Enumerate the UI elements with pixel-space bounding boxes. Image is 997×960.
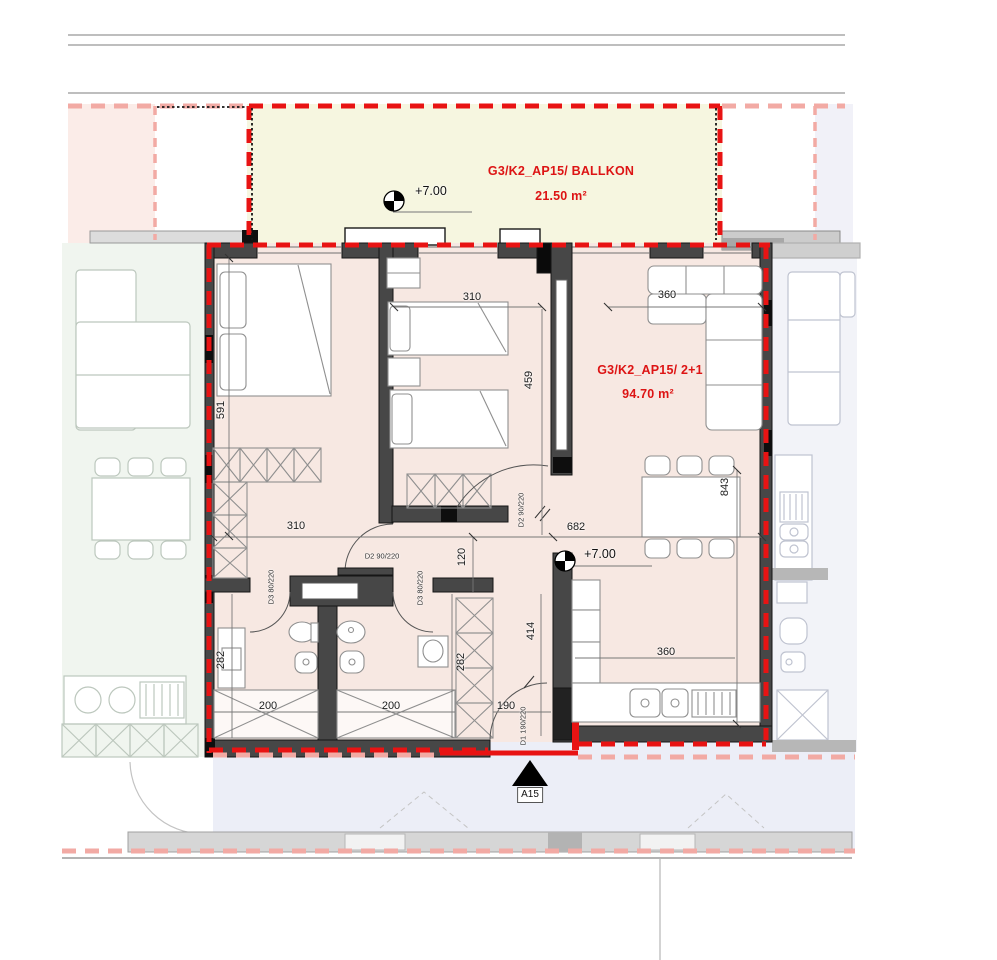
dim-bath1-width: 200: [259, 700, 277, 712]
dim-bath1-depth: 282: [215, 651, 227, 669]
door-label-d1-entry: D1 190/220: [519, 707, 528, 746]
section-marker-label: A15: [517, 787, 543, 803]
door-label-d2-bedroom2: D2 90/220: [517, 493, 526, 528]
dim-hall-width: 310: [287, 520, 305, 532]
dim-bedroom1-depth: 591: [215, 401, 227, 419]
balcony-title: G3/K2_AP15/ BALLKON: [488, 164, 634, 178]
door-label-d3-bath1: D3 80/220: [267, 570, 276, 605]
site-reference-lines: [68, 35, 845, 93]
dim-entry-width: 190: [497, 700, 515, 712]
dim-living-depth: 843: [719, 478, 731, 496]
apartment-area: 94.70 m²: [622, 387, 674, 401]
apartment-elevation: +7.00: [584, 547, 616, 561]
door-label-d3-bath2: D3 80/220: [416, 571, 425, 606]
door-label-d2-bedroom1: D2 90/220: [365, 552, 400, 561]
balcony-elevation: +7.00: [415, 184, 447, 198]
dim-hall-height: 120: [456, 548, 468, 566]
floor-plan-drawing: [0, 0, 997, 960]
dim-living-width: 682: [567, 521, 585, 533]
elevation-marker-balcony: [384, 191, 404, 211]
dim-bedroom2-width: 310: [463, 291, 481, 303]
dining-table: [642, 456, 740, 558]
dim-kitchen-width: 360: [657, 646, 675, 658]
balcony-area: 21.50 m²: [535, 189, 587, 203]
floor-plan-canvas: G3/K2_AP15/ BALLKON 21.50 m² +7.00 G3/K2…: [0, 0, 997, 960]
dim-bath2-width: 200: [382, 700, 400, 712]
dim-kitchen-depth: 414: [525, 622, 537, 640]
dim-bath2-depth: 282: [455, 653, 467, 671]
elevation-marker-living: [555, 551, 575, 571]
apartment-title: G3/K2_AP15/ 2+1: [597, 363, 703, 377]
dim-living-top-width: 360: [658, 289, 676, 301]
bed-double: [217, 264, 331, 396]
dim-bedroom2-depth: 459: [523, 371, 535, 389]
